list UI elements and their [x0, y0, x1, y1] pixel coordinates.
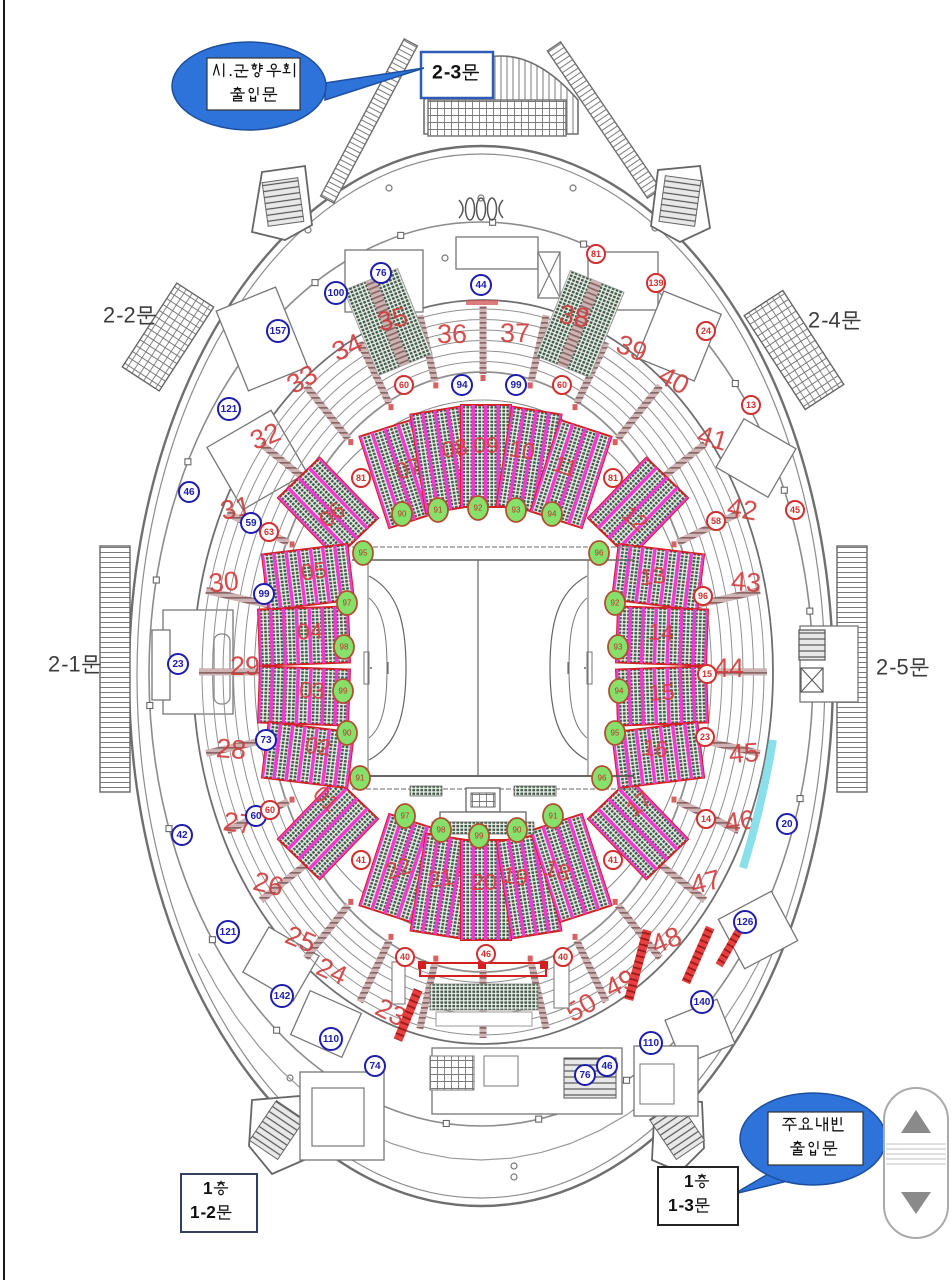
svg-text:121: 121	[220, 927, 237, 938]
svg-text:44: 44	[714, 653, 744, 683]
svg-text:13: 13	[746, 400, 756, 410]
svg-text:81: 81	[591, 249, 601, 259]
svg-text:43: 43	[730, 566, 762, 598]
svg-text:05: 05	[299, 556, 328, 585]
svg-text:76: 76	[579, 1070, 591, 1081]
svg-text:08: 08	[440, 433, 469, 463]
svg-text:121: 121	[221, 404, 238, 415]
svg-text:3: 3	[450, 62, 461, 84]
svg-text:98: 98	[437, 826, 446, 835]
svg-text:97: 97	[343, 599, 352, 608]
svg-text:99: 99	[475, 832, 484, 841]
svg-text:96: 96	[595, 549, 604, 558]
svg-text:100: 100	[328, 288, 345, 299]
svg-text:41: 41	[356, 855, 366, 865]
svg-text:110: 110	[323, 1034, 340, 1045]
svg-text:91: 91	[356, 774, 365, 783]
svg-text:20: 20	[781, 819, 793, 830]
svg-text:2: 2	[103, 302, 115, 327]
svg-text:1: 1	[190, 1202, 200, 1222]
svg-text:09: 09	[473, 432, 499, 458]
svg-text:4: 4	[829, 307, 841, 332]
svg-text:94: 94	[548, 510, 557, 519]
svg-text:92: 92	[474, 504, 483, 513]
svg-text:90: 90	[398, 510, 407, 519]
svg-text:2: 2	[876, 654, 888, 679]
svg-text:1: 1	[684, 1171, 694, 1191]
svg-text:110: 110	[643, 1038, 660, 1049]
svg-text:29: 29	[230, 651, 260, 681]
svg-text:95: 95	[611, 729, 620, 738]
svg-text:157: 157	[270, 326, 287, 337]
svg-text:46: 46	[481, 949, 491, 959]
svg-text:40: 40	[558, 952, 568, 962]
svg-text:41: 41	[608, 855, 618, 865]
svg-text:139: 139	[648, 278, 663, 288]
svg-text:14: 14	[701, 814, 711, 824]
svg-text:60: 60	[399, 380, 409, 390]
svg-text:10: 10	[508, 435, 537, 465]
svg-text:-: -	[61, 651, 68, 676]
svg-text:16: 16	[641, 734, 669, 763]
svg-text:140: 140	[694, 997, 711, 1008]
svg-text:126: 126	[737, 917, 754, 928]
svg-text:42: 42	[725, 492, 760, 527]
svg-text:95: 95	[359, 549, 368, 558]
svg-text:92: 92	[611, 599, 620, 608]
svg-text:45: 45	[790, 505, 800, 515]
svg-text:15: 15	[648, 678, 675, 705]
svg-text:90: 90	[343, 729, 352, 738]
svg-text:59: 59	[245, 518, 257, 529]
svg-text:98: 98	[340, 643, 349, 652]
svg-text:21: 21	[426, 863, 455, 893]
svg-text:1: 1	[69, 651, 81, 676]
svg-text:.: .	[228, 60, 233, 80]
svg-text:30: 30	[207, 566, 240, 599]
svg-text:38: 38	[557, 299, 592, 334]
svg-text:74: 74	[369, 1061, 381, 1072]
svg-text:02: 02	[304, 731, 333, 760]
svg-text:42: 42	[176, 830, 188, 841]
svg-text:81: 81	[356, 473, 366, 483]
svg-text:23: 23	[172, 659, 184, 670]
svg-text:19: 19	[501, 861, 530, 891]
svg-text:46: 46	[183, 487, 195, 498]
svg-text:23: 23	[700, 732, 710, 742]
svg-text:2: 2	[432, 62, 443, 84]
svg-text:76: 76	[375, 268, 387, 279]
svg-text:63: 63	[264, 527, 274, 537]
svg-text:14: 14	[648, 618, 675, 645]
svg-text:3: 3	[684, 1195, 694, 1215]
svg-text:46: 46	[601, 1061, 613, 1072]
svg-text:96: 96	[598, 774, 607, 783]
svg-text:99: 99	[510, 380, 522, 391]
svg-text:91: 91	[434, 506, 443, 515]
svg-text:93: 93	[614, 643, 623, 652]
svg-text:1: 1	[668, 1195, 678, 1215]
svg-text:04: 04	[296, 617, 323, 644]
svg-text:2: 2	[48, 651, 60, 676]
svg-text:94: 94	[615, 687, 624, 696]
svg-text:03: 03	[299, 676, 326, 703]
svg-text:37: 37	[500, 318, 530, 348]
svg-text:93: 93	[512, 506, 521, 515]
svg-text:97: 97	[401, 812, 410, 821]
svg-text:73: 73	[260, 735, 272, 746]
svg-text:94: 94	[456, 380, 468, 391]
svg-text:142: 142	[274, 991, 291, 1002]
svg-text:60: 60	[250, 811, 262, 822]
svg-text:58: 58	[711, 516, 721, 526]
svg-text:2: 2	[124, 302, 136, 327]
svg-text:45: 45	[728, 737, 760, 769]
svg-text:60: 60	[557, 380, 567, 390]
svg-text:28: 28	[215, 733, 247, 765]
svg-text:-: -	[821, 307, 828, 332]
svg-text:40: 40	[400, 952, 410, 962]
svg-text:-: -	[889, 654, 896, 679]
svg-text:20: 20	[471, 869, 497, 895]
svg-text:24: 24	[701, 326, 711, 336]
svg-text:91: 91	[549, 812, 558, 821]
svg-text:13: 13	[639, 562, 667, 591]
svg-text:5: 5	[897, 654, 909, 679]
svg-text:44: 44	[475, 280, 487, 291]
svg-text:90: 90	[513, 826, 522, 835]
svg-text:1: 1	[203, 1178, 213, 1198]
svg-text:99: 99	[339, 687, 348, 696]
svg-text:99: 99	[258, 589, 270, 600]
svg-text:81: 81	[608, 473, 618, 483]
svg-text:36: 36	[437, 319, 467, 349]
svg-text:15: 15	[702, 669, 712, 679]
svg-text:2: 2	[206, 1202, 216, 1222]
svg-text:-: -	[116, 302, 123, 327]
svg-text:60: 60	[265, 805, 275, 815]
svg-text:2: 2	[808, 307, 820, 332]
svg-text:96: 96	[698, 591, 708, 601]
